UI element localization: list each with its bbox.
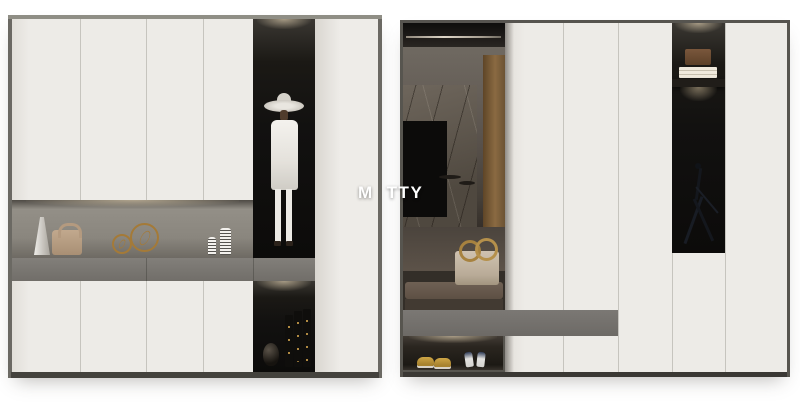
door-seam [203,281,204,372]
drawer-seam [253,258,254,281]
beige-handbag [455,251,499,285]
brown-box [685,49,711,65]
white-book-stack [679,67,717,78]
navy-heel [476,352,486,368]
angular-vase [34,217,50,255]
mannequin-shoe [274,241,281,246]
gold-wire-sphere [112,234,132,254]
abstract-figurine [679,163,719,253]
figurine-limb [683,196,702,244]
clothes-rail [406,36,501,38]
yellow-loafer [434,358,451,367]
door-seam [146,281,147,372]
navy-heel [464,352,474,368]
niche-light-strip [409,336,497,343]
gold-wire-sphere [130,223,159,252]
door-seam [618,23,619,373]
drawer-band [403,310,618,336]
drawer-seam [146,258,147,281]
wardrobe-header [403,23,505,47]
coffee-table [459,181,475,185]
left-wardrobe-render [8,15,382,378]
wood-panel [483,55,505,227]
brand-watermark: M TTY [358,183,423,203]
alcove-light-strip [675,23,722,33]
white-coat [271,120,298,190]
product-render-canvas: { "watermark": { "part1": "M", "part2": … [0,0,800,403]
mannequin-leg [275,189,281,242]
door-seam [146,19,147,200]
cabinet-base [403,372,787,377]
upper-display-alcove [672,23,725,253]
black-book [285,315,293,367]
shoe-niche [403,336,503,370]
display-niche [12,200,253,258]
alcove-shelf [672,79,725,87]
door-seam [80,281,81,372]
upper-door-row [12,19,253,200]
door-seam [725,23,726,373]
shelf-light [680,87,717,101]
watermark-part2: TTY [387,183,424,203]
coffee-table [439,175,461,179]
watermark-part1: M [358,183,374,203]
black-book [303,309,311,367]
lower-door-row [12,281,253,372]
dark-vase [263,343,279,366]
mannequin-leg [286,189,292,242]
open-section-room-view [403,23,505,315]
door-seam [203,19,204,200]
yellow-loafer [417,357,434,366]
mannequin-shoe [286,241,293,246]
bench-zone [403,271,505,315]
alcove-light-strip [257,281,312,291]
striped-vase [208,237,216,255]
right-wardrobe-render [400,20,790,377]
tan-handbag [52,230,82,255]
mannequin-alcove [253,19,315,258]
striped-vase [220,228,231,255]
book-alcove [253,281,315,372]
niche-light-strip [26,200,238,207]
door-seam [80,19,81,200]
black-book [294,311,302,367]
mannequin [253,19,315,258]
cabinet-base [11,372,379,378]
drawer-band [12,258,315,281]
